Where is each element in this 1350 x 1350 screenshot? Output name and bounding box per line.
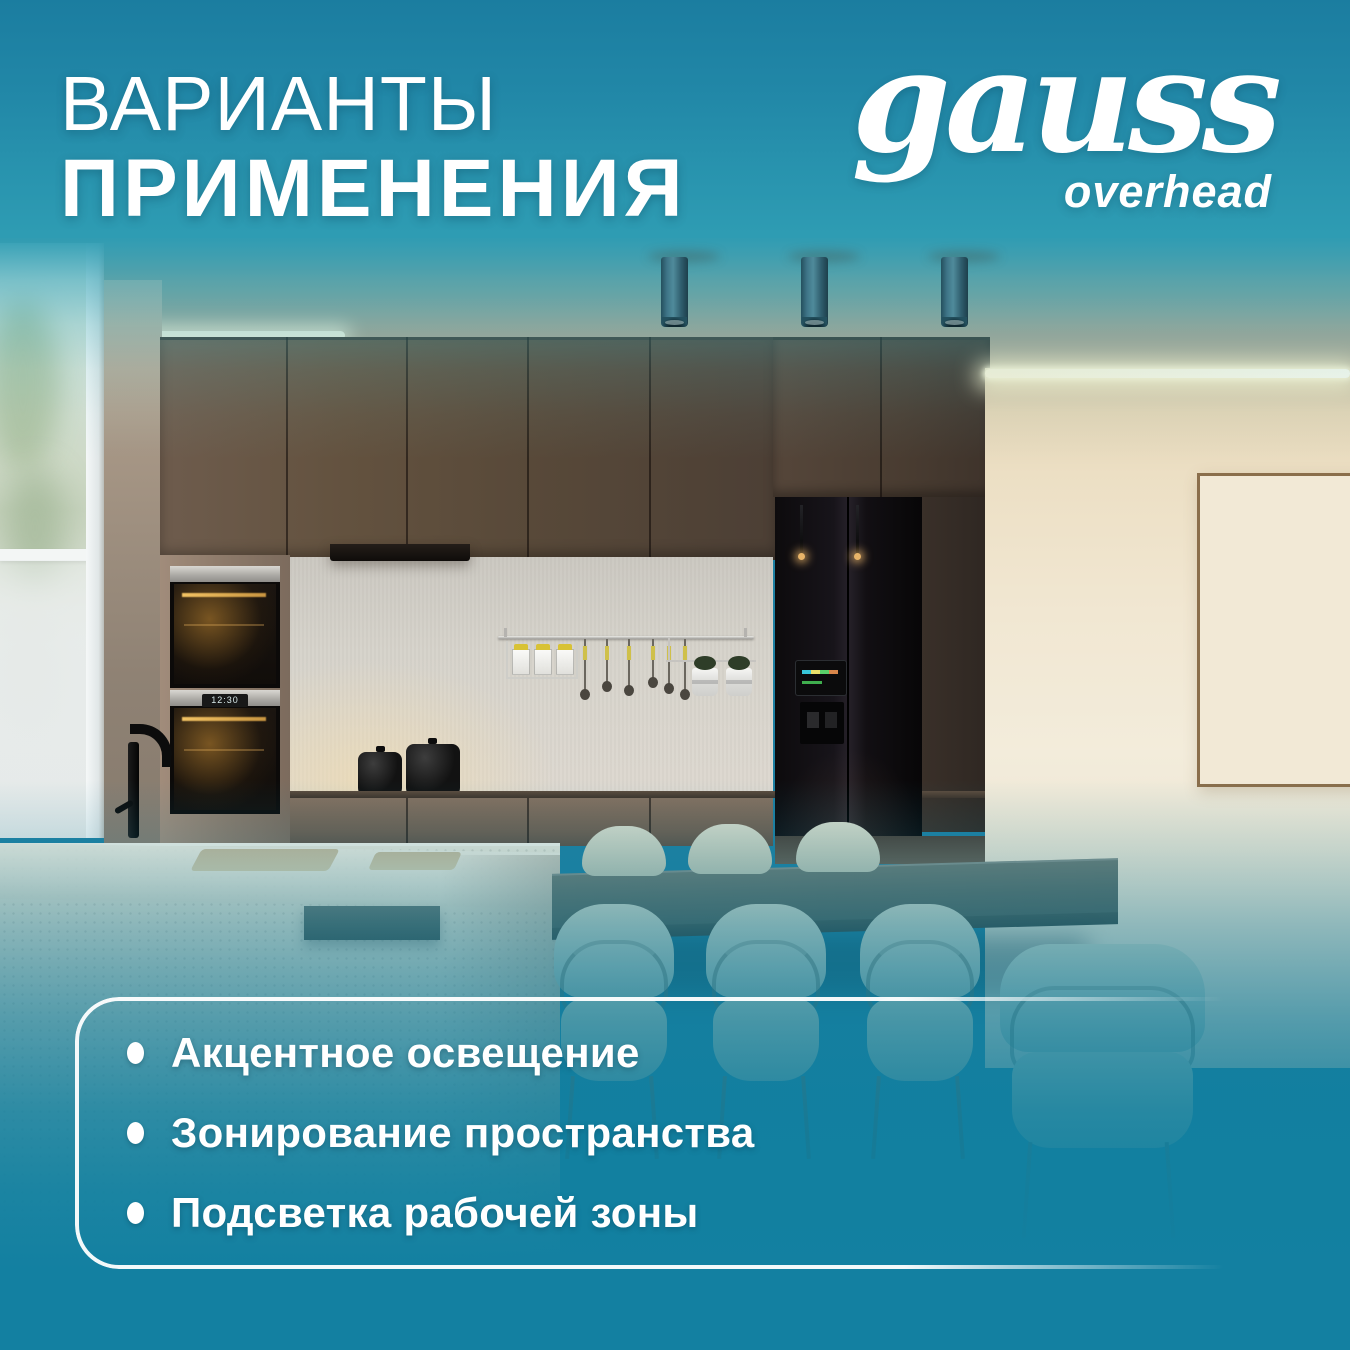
headline-line2: ПРИМЕНЕНИЯ [60,146,687,233]
bullet-icon [127,1042,144,1064]
hanging-server [628,639,630,687]
herb-pot [726,668,752,696]
headline: ВАРИАНТЫ ПРИМЕНЕНИЯ [60,64,687,233]
bullet-icon [127,1122,144,1144]
hanging-skimmer [684,639,686,691]
overhead-cylinder-light [941,257,968,327]
spice-jar [512,649,530,675]
hanging-spoon [652,639,654,679]
herb-pot [692,668,718,696]
oven-door-glass [174,584,276,684]
bullet-icon [127,1202,144,1224]
hanging-whisk [584,639,586,691]
spice-jar [556,649,574,675]
features-list: Акцентное освещение Зонирование простран… [75,997,1260,1269]
fridge-dispenser [800,702,844,744]
spice-shelf [506,641,578,679]
wall-oven-upper [170,566,280,688]
promo-poster: 12:30 [0,0,1350,1350]
oven-control-band [170,566,280,582]
feature-label: Акцентное освещение [171,1029,640,1077]
rail-post [504,628,507,637]
overhead-cylinder-light [801,257,828,327]
feature-label: Подсветка рабочей зоны [171,1189,699,1237]
rail-drop [668,638,670,662]
fridge-display [795,660,847,696]
spice-jar [534,649,552,675]
rail-post [744,628,747,637]
utensil-rail [498,636,754,639]
feature-item: Акцентное освещение [127,1029,1260,1077]
headline-line1: ВАРИАНТЫ [60,64,687,146]
feature-item: Зонирование пространства [127,1109,1260,1157]
faucet-spout [162,752,171,767]
brand-logo-wordmark: gauss [852,44,1276,160]
feature-label: Зонирование пространства [171,1109,755,1157]
hanging-spatula [606,639,608,683]
oven-clock-display: 12:30 [202,694,248,707]
brand-logo: gauss overhead [852,44,1276,218]
features-panel: Акцентное освещение Зонирование простран… [75,997,1260,1269]
feature-item: Подсветка рабочей зоны [127,1189,1260,1237]
overhead-cylinder-light [661,257,688,327]
